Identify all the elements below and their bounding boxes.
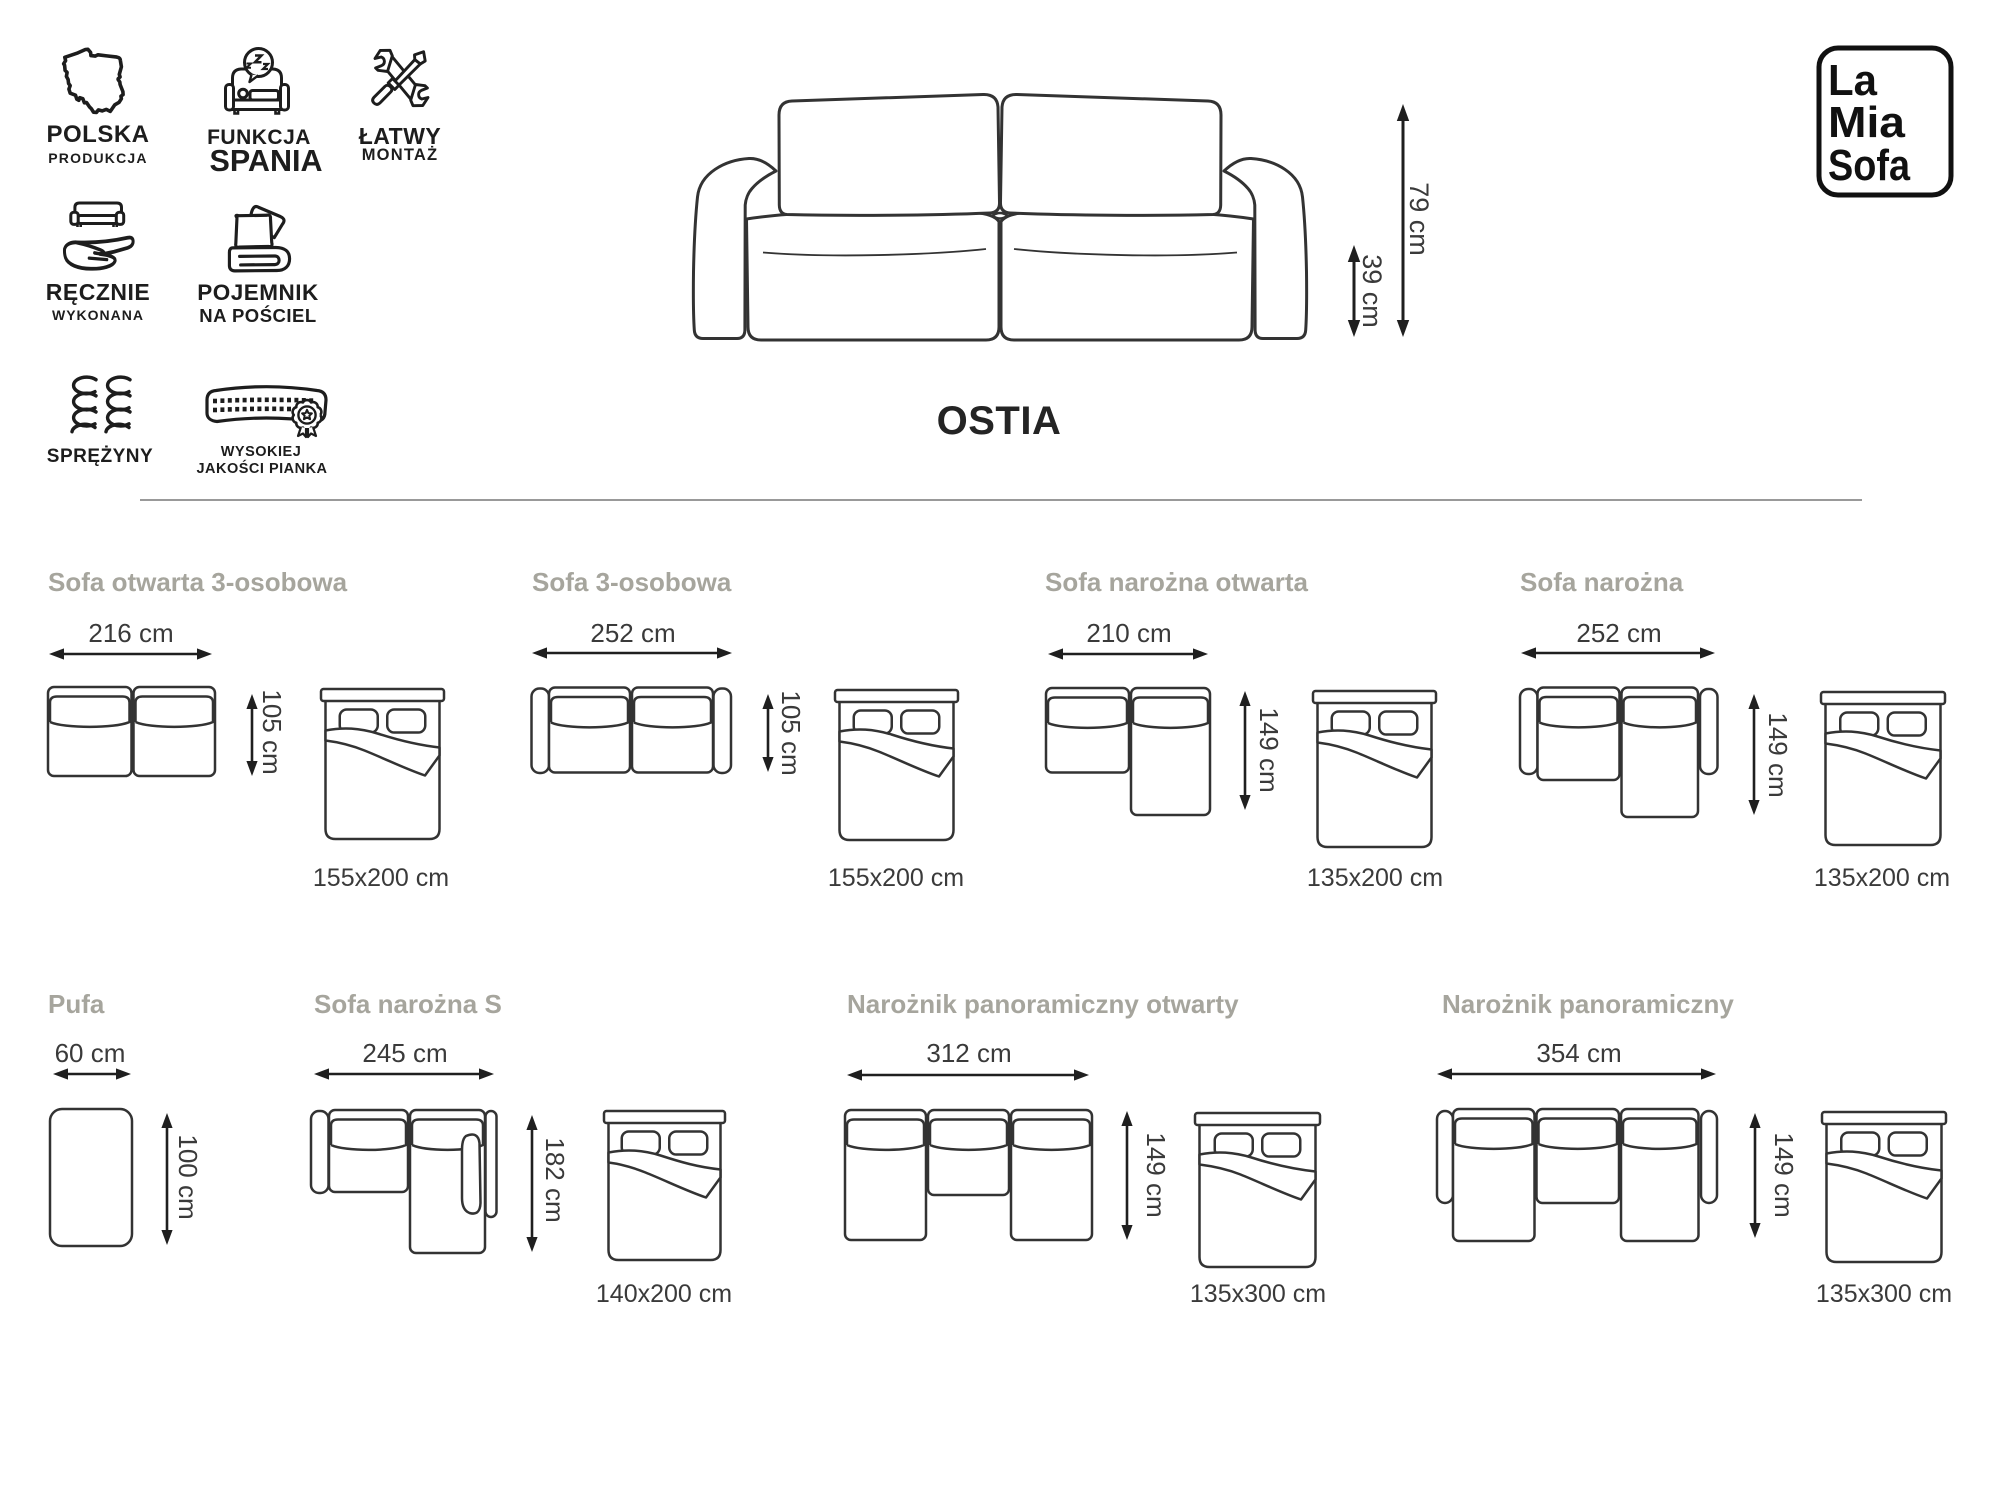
svg-text:155x200 cm: 155x200 cm	[828, 864, 964, 892]
svg-text:Mia: Mia	[1828, 98, 1906, 147]
svg-text:100 cm: 100 cm	[173, 1134, 203, 1219]
svg-text:Sofa 3-osobowa: Sofa 3-osobowa	[532, 567, 732, 597]
svg-text:SPANIA: SPANIA	[210, 144, 323, 178]
svg-text:245 cm: 245 cm	[362, 1038, 447, 1068]
svg-text:312 cm: 312 cm	[926, 1038, 1011, 1068]
svg-text:POJEMNIK: POJEMNIK	[197, 280, 319, 305]
svg-text:Sofa narożna otwarta: Sofa narożna otwarta	[1045, 567, 1308, 597]
svg-text:135x200 cm: 135x200 cm	[1307, 864, 1443, 892]
svg-text:155x200 cm: 155x200 cm	[313, 864, 449, 892]
svg-text:MONTAŻ: MONTAŻ	[362, 146, 439, 164]
svg-text:60 cm: 60 cm	[55, 1038, 126, 1068]
svg-text:149 cm: 149 cm	[1254, 707, 1284, 792]
svg-text:140x200 cm: 140x200 cm	[596, 1280, 732, 1308]
svg-text:Sofa narożna S: Sofa narożna S	[314, 989, 502, 1019]
svg-text:79 cm: 79 cm	[1404, 182, 1434, 256]
svg-text:PRODUKCJA: PRODUKCJA	[48, 150, 147, 166]
svg-text:149 cm: 149 cm	[1141, 1132, 1171, 1217]
svg-text:135x300 cm: 135x300 cm	[1190, 1280, 1326, 1308]
svg-text:POLSKA: POLSKA	[46, 121, 149, 148]
svg-text:216 cm: 216 cm	[88, 618, 173, 648]
svg-text:RĘCZNIE: RĘCZNIE	[46, 279, 150, 305]
svg-text:SPRĘŻYNY: SPRĘŻYNY	[47, 446, 153, 467]
svg-text:105 cm: 105 cm	[257, 689, 287, 774]
svg-text:Sofa narożna: Sofa narożna	[1520, 567, 1684, 597]
svg-text:105 cm: 105 cm	[776, 690, 806, 775]
svg-text:Narożnik panoramiczny: Narożnik panoramiczny	[1442, 989, 1734, 1019]
svg-text:135x300 cm: 135x300 cm	[1816, 1280, 1952, 1308]
svg-text:252 cm: 252 cm	[590, 618, 675, 648]
svg-text:182 cm: 182 cm	[540, 1137, 570, 1222]
svg-text:Sofa otwarta 3-osobowa: Sofa otwarta 3-osobowa	[48, 567, 348, 597]
svg-text:NA POŚCIEL: NA POŚCIEL	[199, 305, 316, 326]
svg-text:Sofa: Sofa	[1828, 141, 1910, 190]
svg-text:JAKOŚCI PIANKA: JAKOŚCI PIANKA	[196, 459, 327, 477]
svg-text:354 cm: 354 cm	[1536, 1038, 1621, 1068]
svg-text:39 cm: 39 cm	[1357, 254, 1387, 328]
svg-text:210 cm: 210 cm	[1086, 618, 1171, 648]
svg-text:WYSOKIEJ: WYSOKIEJ	[221, 444, 302, 460]
svg-text:Pufa: Pufa	[48, 989, 105, 1019]
svg-text:WYKONANA: WYKONANA	[52, 307, 144, 323]
svg-text:Narożnik panoramiczny otwarty: Narożnik panoramiczny otwarty	[847, 989, 1239, 1019]
svg-text:135x200 cm: 135x200 cm	[1814, 864, 1950, 892]
svg-text:149 cm: 149 cm	[1763, 712, 1793, 797]
svg-text:149 cm: 149 cm	[1769, 1132, 1799, 1217]
svg-text:252 cm: 252 cm	[1576, 618, 1661, 648]
svg-text:OSTIA: OSTIA	[937, 399, 1062, 443]
